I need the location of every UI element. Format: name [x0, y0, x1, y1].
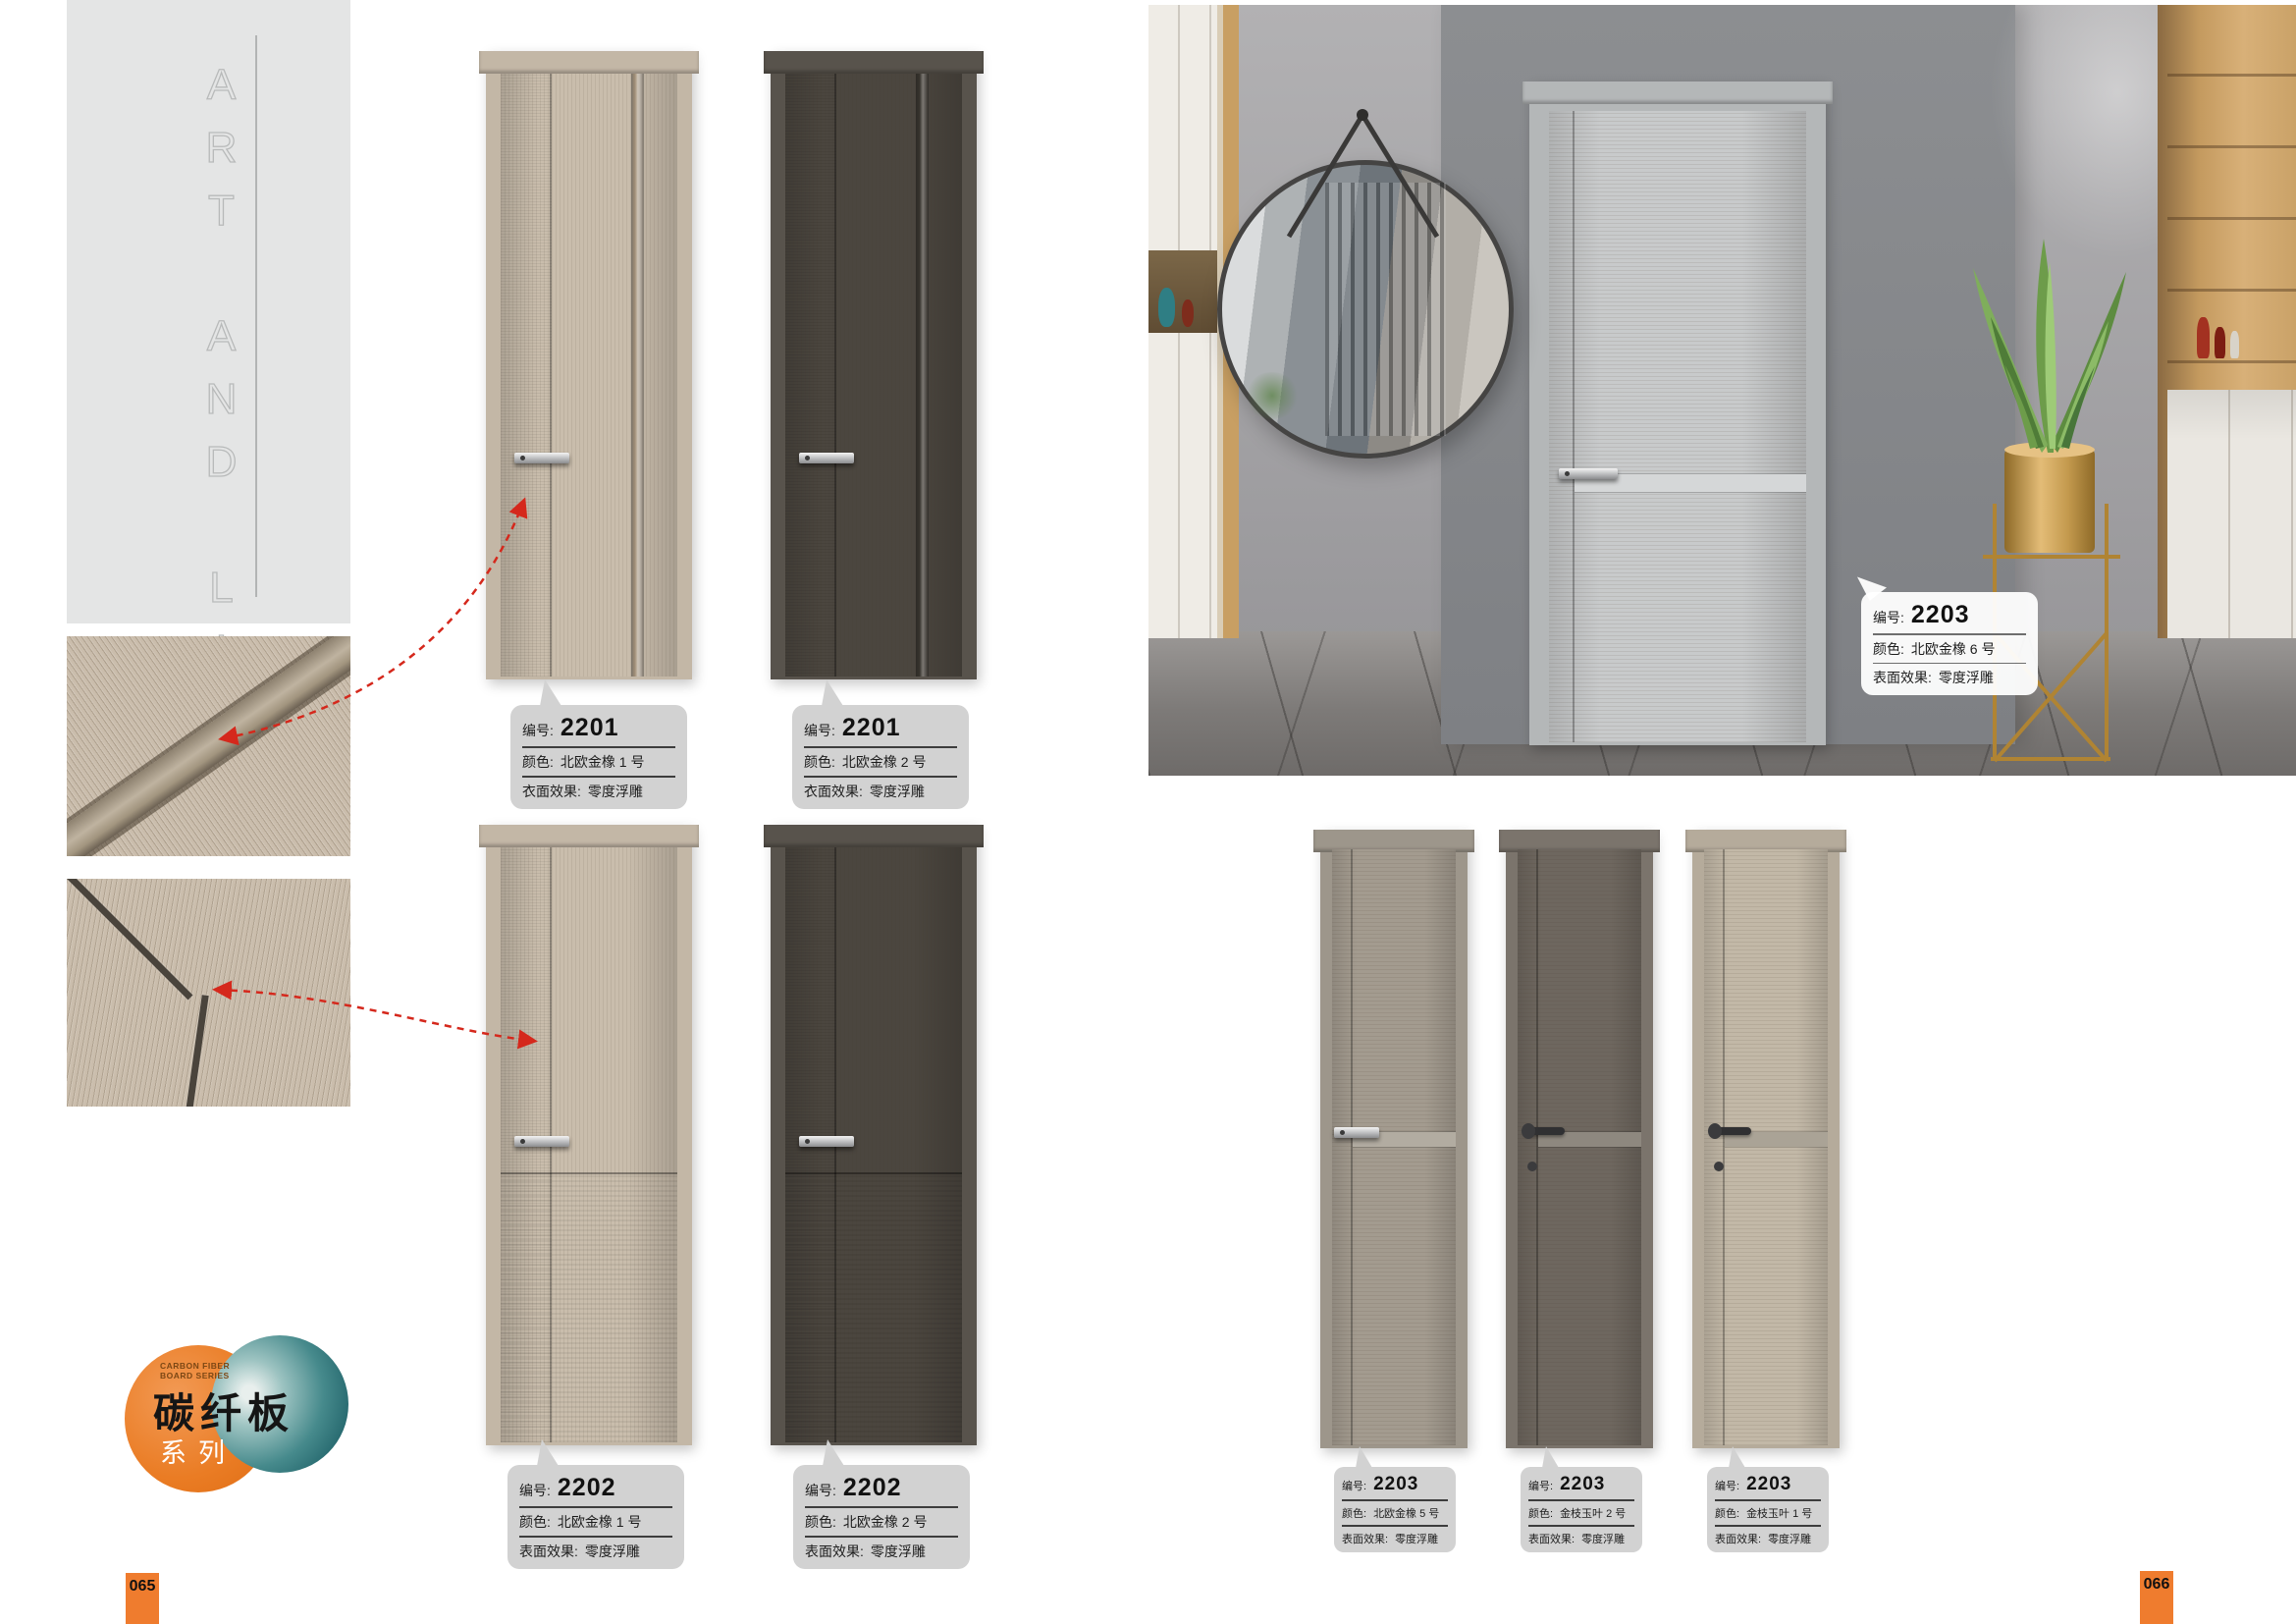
mirror-strap-knot	[1357, 109, 1368, 121]
divider	[522, 746, 675, 748]
code-caption: 编号:	[1873, 608, 1904, 627]
effect-value: 零度浮雕	[871, 1542, 926, 1561]
door-2201-light	[486, 51, 692, 679]
door-handle	[1334, 1127, 1379, 1138]
door-frame-head	[764, 51, 984, 74]
color-value: 北欧金橡 2 号	[842, 752, 927, 772]
product-label-2201-1: 编号:2201 颜色:北欧金橡 1 号 衣面效果:零度浮雕	[510, 705, 687, 809]
color-caption: 颜色:	[1873, 639, 1904, 659]
door-keyhole	[1714, 1162, 1724, 1171]
code-caption: 编号:	[1715, 1478, 1739, 1493]
color-caption: 颜色:	[804, 752, 835, 772]
door-leaf	[1518, 849, 1641, 1445]
door-handle	[799, 453, 854, 463]
color-value: 北欧金橡 1 号	[561, 752, 645, 772]
effect-caption: 衣面效果:	[522, 782, 581, 801]
effect-caption: 表面效果:	[1873, 668, 1932, 687]
door-accent-strip	[631, 74, 644, 677]
effect-value: 零度浮雕	[588, 782, 643, 801]
door-handle	[514, 1136, 569, 1147]
door-2203-jade1	[1692, 830, 1840, 1448]
color-caption: 颜色:	[1342, 1505, 1366, 1521]
effect-value: 零度浮雕	[585, 1542, 640, 1561]
door-2203-jade2	[1506, 830, 1653, 1448]
effect-value: 零度浮雕	[1395, 1531, 1438, 1546]
logo-subtitle: 系列	[160, 1432, 237, 1470]
logo-tagline-line1: CARBON FIBER	[160, 1361, 230, 1371]
product-code: 2203	[1373, 1474, 1418, 1495]
color-caption: 颜色:	[522, 752, 554, 772]
door-handle	[1710, 1127, 1751, 1135]
door-2201-dark	[771, 51, 977, 679]
divider	[1715, 1525, 1821, 1527]
code-caption: 编号:	[522, 721, 554, 740]
product-label-2203-1: 编号:2203 颜色:北欧金橡 5 号 表面效果:零度浮雕	[1334, 1467, 1456, 1552]
texture-detail-metal-strip	[67, 636, 350, 856]
door-frame-head	[479, 51, 699, 74]
gold-planter	[2004, 449, 2095, 553]
divider	[1873, 633, 2026, 635]
color-caption: 颜色:	[1715, 1505, 1739, 1521]
door-handle	[799, 1136, 854, 1147]
door-2202-dark	[771, 825, 977, 1445]
product-code: 2201	[561, 714, 619, 742]
color-caption: 颜色:	[1528, 1505, 1553, 1521]
logo-tagline-line2: BOARD SERIES	[160, 1371, 230, 1380]
door-2203-oak5	[1320, 830, 1468, 1448]
divider	[522, 776, 675, 778]
color-caption: 颜色:	[519, 1512, 551, 1532]
brand-divider-line	[255, 35, 257, 597]
door-groove	[1536, 849, 1538, 1445]
color-caption: 颜色:	[805, 1512, 836, 1532]
code-caption: 编号:	[519, 1481, 551, 1500]
product-code: 2201	[842, 714, 901, 742]
divider	[805, 1536, 958, 1538]
door-stile	[785, 74, 836, 677]
logo-tagline: CARBON FIBER BOARD SERIES	[160, 1361, 230, 1380]
effect-caption: 表面效果:	[1528, 1531, 1575, 1546]
effect-caption: 衣面效果:	[804, 782, 863, 801]
code-caption: 编号:	[805, 1481, 836, 1500]
effect-value: 零度浮雕	[1939, 668, 1994, 687]
effect-caption: 表面效果:	[1715, 1531, 1761, 1546]
divider	[1342, 1525, 1448, 1527]
catalog-spread: { "brand": { "vertical_text": "ART AND L…	[0, 0, 2296, 1624]
divider	[519, 1506, 672, 1508]
door-stile	[501, 74, 552, 677]
effect-caption: 表面效果:	[805, 1542, 864, 1561]
product-label-2202-2: 编号:2202 颜色:北欧金橡 2 号 表面效果:零度浮雕	[793, 1465, 970, 1569]
effect-value: 零度浮雕	[1581, 1531, 1625, 1546]
product-code: 2203	[1911, 601, 1970, 629]
divider	[804, 776, 957, 778]
color-value: 金枝玉叶 1 号	[1746, 1505, 1812, 1521]
door-frame-head	[764, 825, 984, 847]
divider	[1873, 663, 2026, 665]
divider	[1342, 1499, 1448, 1501]
effect-caption: 表面效果:	[519, 1542, 578, 1561]
color-value: 金枝玉叶 2 号	[1560, 1505, 1626, 1521]
product-code: 2203	[1746, 1474, 1791, 1495]
product-label-2203-3: 编号:2203 颜色:金枝玉叶 1 号 表面效果:零度浮雕	[1707, 1467, 1829, 1552]
door-leaf	[785, 74, 962, 677]
door-groove	[1351, 849, 1353, 1445]
product-label-2201-2: 编号:2201 颜色:北欧金橡 2 号 衣面效果:零度浮雕	[792, 705, 969, 809]
product-label-scene: 编号:2203 颜色:北欧金橡 6 号 表面效果:零度浮雕	[1861, 592, 2038, 695]
product-label-2203-2: 编号:2203 颜色:金枝玉叶 2 号 表面效果:零度浮雕	[1521, 1467, 1642, 1552]
door-frame-head	[479, 825, 699, 847]
door-accent-strip	[916, 74, 929, 677]
effect-caption: 表面效果:	[1342, 1531, 1388, 1546]
texture-detail-groove	[67, 879, 350, 1107]
page-number-left: 065	[126, 1573, 159, 1624]
door-groove	[1723, 849, 1725, 1445]
code-caption: 编号:	[1528, 1478, 1553, 1493]
brand-panel: ART AND LIFE	[67, 0, 350, 623]
code-caption: 编号:	[1342, 1478, 1366, 1493]
color-value: 北欧金橡 5 号	[1373, 1505, 1439, 1521]
door-keyhole	[1527, 1162, 1537, 1171]
color-value: 北欧金橡 2 号	[843, 1512, 928, 1532]
room-scene-photo: 编号:2203 颜色:北欧金橡 6 号 表面效果:零度浮雕	[1148, 5, 2296, 776]
product-code: 2203	[1560, 1474, 1605, 1495]
code-caption: 编号:	[804, 721, 835, 740]
product-code: 2202	[558, 1474, 616, 1502]
scene-decorations	[1148, 5, 2296, 776]
divider	[805, 1506, 958, 1508]
page-number-right: 066	[2140, 1571, 2173, 1624]
effect-value: 零度浮雕	[1768, 1531, 1811, 1546]
divider	[804, 746, 957, 748]
door-leaf	[785, 847, 962, 1442]
snake-plant	[1973, 239, 2126, 453]
product-label-2202-1: 编号:2202 颜色:北欧金橡 1 号 表面效果:零度浮雕	[507, 1465, 684, 1569]
door-2202-light	[486, 825, 692, 1445]
divider	[519, 1536, 672, 1538]
effect-value: 零度浮雕	[870, 782, 925, 801]
product-code: 2202	[843, 1474, 902, 1502]
divider	[1715, 1499, 1821, 1501]
color-value: 北欧金橡 6 号	[1911, 639, 1996, 659]
color-value: 北欧金橡 1 号	[558, 1512, 642, 1532]
divider	[1528, 1525, 1634, 1527]
door-leaf	[501, 847, 677, 1442]
door-handle	[514, 453, 569, 463]
mirror-strap	[1289, 115, 1437, 237]
door-handle	[1523, 1127, 1565, 1135]
divider	[1528, 1499, 1634, 1501]
door-leaf	[1704, 849, 1828, 1445]
door-leaf	[1332, 849, 1456, 1445]
door-leaf	[501, 74, 677, 677]
